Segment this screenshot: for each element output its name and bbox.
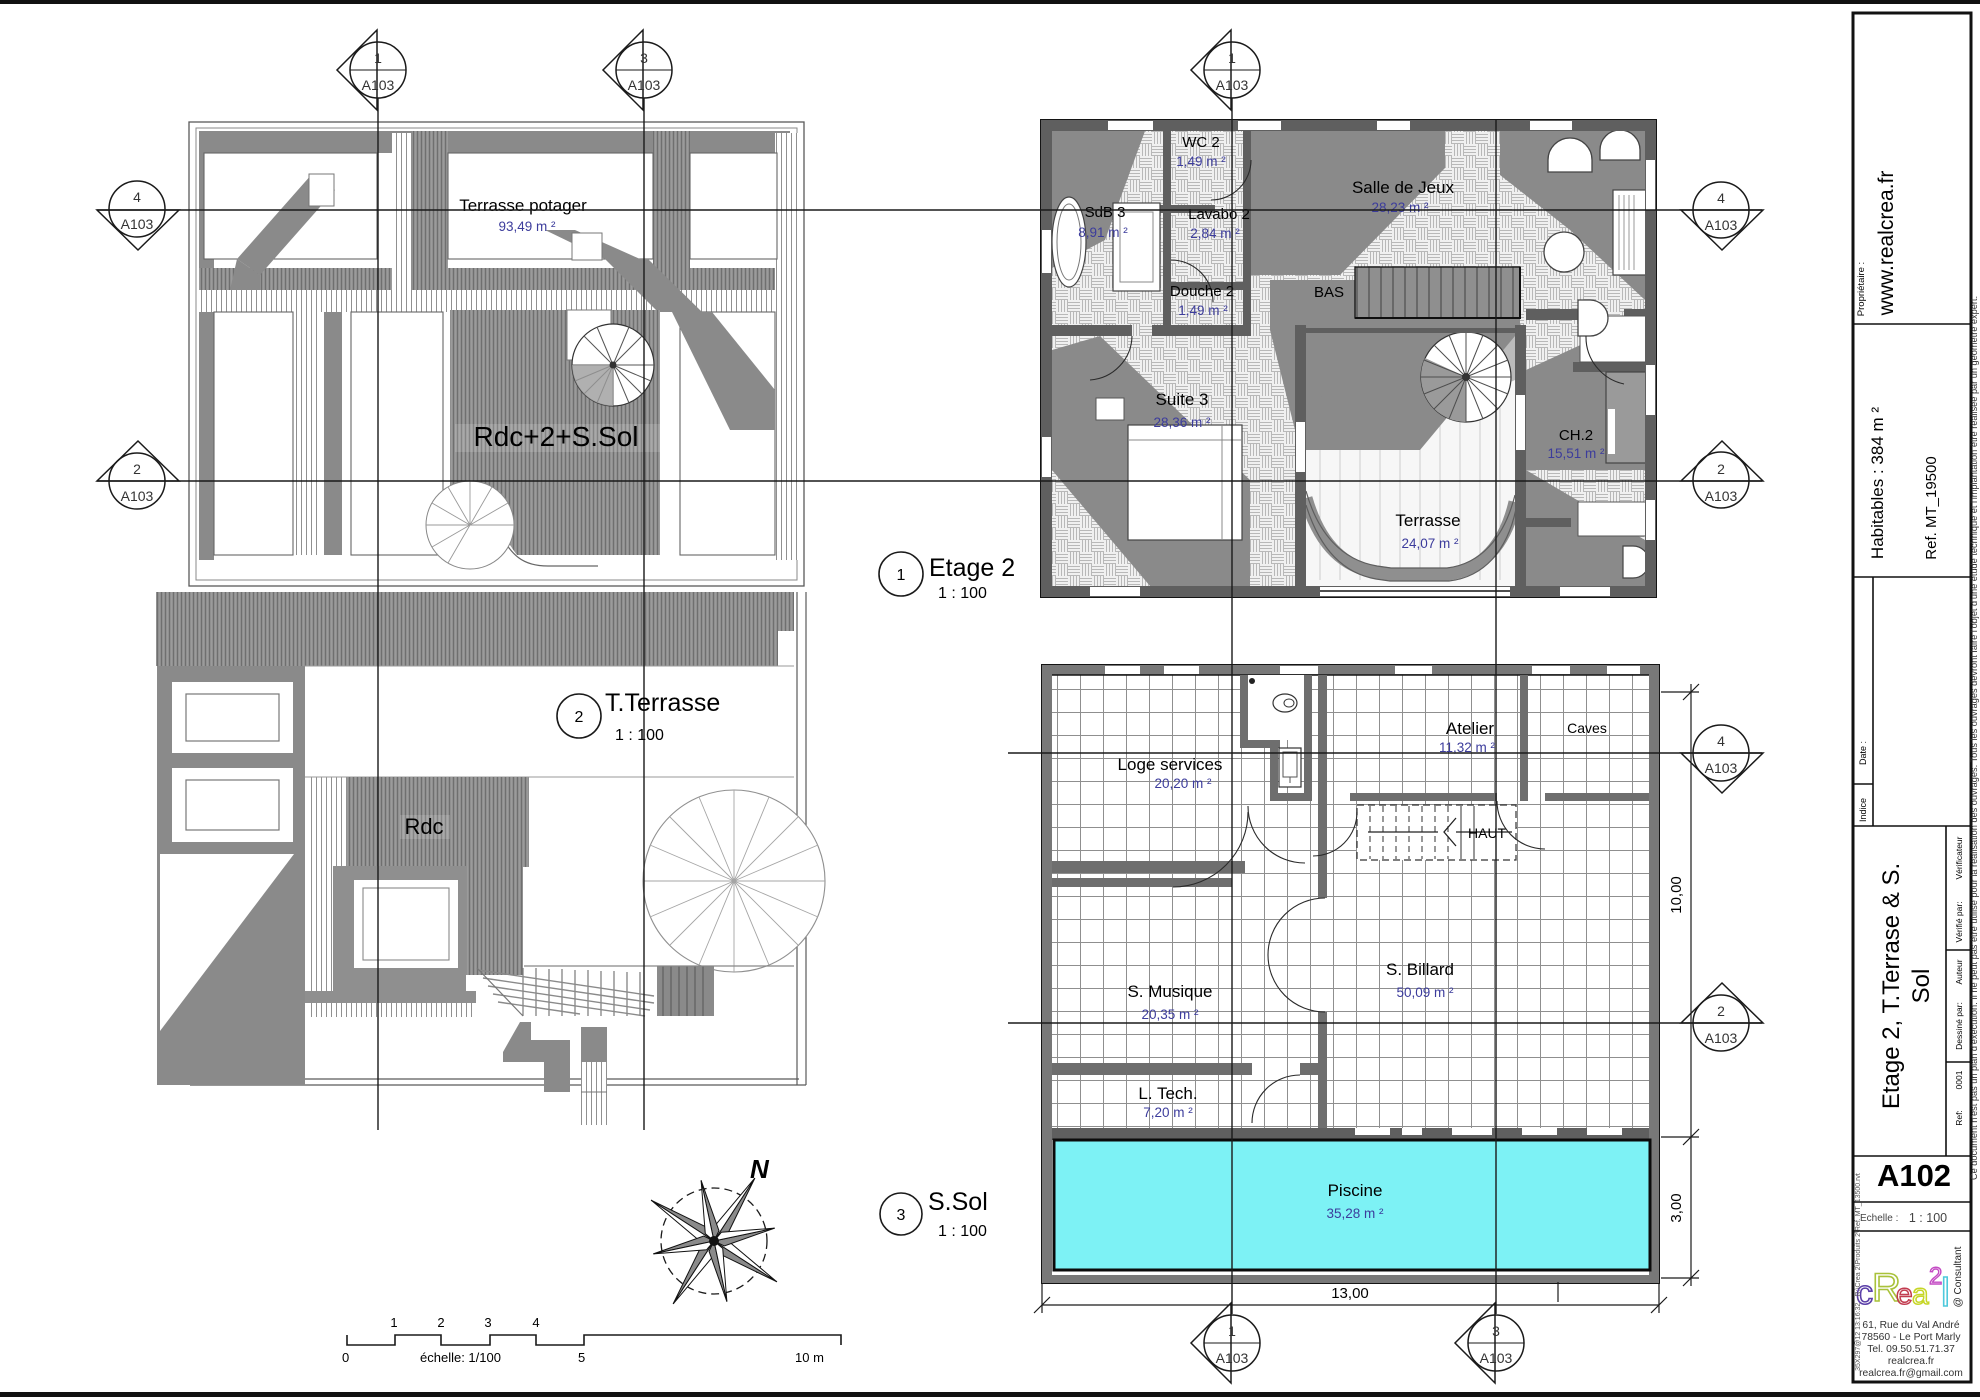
svg-text:A103: A103 bbox=[121, 488, 154, 504]
svg-text:Lavabo 2: Lavabo 2 bbox=[1188, 206, 1250, 223]
svg-text:5: 5 bbox=[578, 1350, 585, 1365]
svg-text:S.Sol: S.Sol bbox=[928, 1188, 988, 1216]
svg-text:A103: A103 bbox=[1705, 760, 1738, 776]
svg-text:S. Billard: S. Billard bbox=[1386, 960, 1454, 979]
svg-text:A103: A103 bbox=[121, 216, 154, 232]
svg-text:Habitables : 384 m ²: Habitables : 384 m ² bbox=[1868, 407, 1887, 559]
svg-text:2: 2 bbox=[1717, 461, 1725, 477]
svg-text:1: 1 bbox=[390, 1315, 397, 1330]
svg-text:S. Musique: S. Musique bbox=[1127, 982, 1212, 1001]
svg-text:Suite 3: Suite 3 bbox=[1156, 390, 1209, 409]
svg-text:CH.2: CH.2 bbox=[1559, 427, 1593, 444]
svg-text:35X297@12 13:16:32 - R:\Crea 2: 35X297@12 13:16:32 - R:\Crea 2\Produits … bbox=[1855, 1173, 1862, 1371]
svg-text:8,91 m ²: 8,91 m ² bbox=[1078, 225, 1128, 240]
svg-text:1 : 100: 1 : 100 bbox=[615, 727, 664, 744]
svg-text:Atelier: Atelier bbox=[1446, 719, 1495, 738]
svg-text:Rdc: Rdc bbox=[404, 814, 443, 839]
svg-text:A103: A103 bbox=[1480, 1350, 1513, 1366]
svg-text:3: 3 bbox=[484, 1315, 491, 1330]
svg-text:Etage 2, T.Terrase & S.: Etage 2, T.Terrase & S. bbox=[1878, 863, 1905, 1109]
svg-text:Auteur: Auteur bbox=[1954, 959, 1964, 984]
svg-text:28,23 m ²: 28,23 m ² bbox=[1371, 200, 1429, 215]
svg-text:Indice: Indice bbox=[1858, 798, 1868, 822]
svg-text:1: 1 bbox=[1228, 1323, 1236, 1339]
svg-text:1: 1 bbox=[897, 567, 906, 584]
svg-text:realcrea.fr: realcrea.fr bbox=[1888, 1356, 1935, 1367]
svg-text:Douche 2: Douche 2 bbox=[1170, 283, 1234, 300]
svg-text:4: 4 bbox=[133, 189, 141, 205]
svg-text:l: l bbox=[1941, 1271, 1950, 1315]
svg-text:4: 4 bbox=[532, 1315, 539, 1330]
svg-text:Etage 2: Etage 2 bbox=[929, 554, 1015, 582]
svg-text:13,00: 13,00 bbox=[1331, 1285, 1369, 1302]
svg-text:61, Rue du Val André: 61, Rue du Val André bbox=[1862, 1320, 1959, 1331]
svg-text:Ref. MT_19500: Ref. MT_19500 bbox=[1923, 456, 1940, 559]
svg-text:2: 2 bbox=[1717, 1003, 1725, 1019]
svg-text:A103: A103 bbox=[1705, 1030, 1738, 1046]
svg-text:1 : 100: 1 : 100 bbox=[938, 585, 987, 602]
svg-text:Piscine: Piscine bbox=[1328, 1181, 1383, 1200]
svg-text:A103: A103 bbox=[1705, 488, 1738, 504]
svg-text:Sol: Sol bbox=[1908, 969, 1935, 1004]
svg-text:10,00: 10,00 bbox=[1668, 876, 1685, 914]
svg-text:e: e bbox=[1896, 1278, 1913, 1311]
svg-text:Caves: Caves bbox=[1567, 720, 1607, 736]
svg-text:A103: A103 bbox=[1216, 77, 1249, 93]
svg-text:Tel. 09.50.51.71.37: Tel. 09.50.51.71.37 bbox=[1867, 1344, 1955, 1355]
svg-text:2: 2 bbox=[437, 1315, 444, 1330]
svg-text:Terrasse potager: Terrasse potager bbox=[459, 196, 587, 215]
svg-text:a: a bbox=[1912, 1278, 1929, 1311]
svg-text:7,20 m ²: 7,20 m ² bbox=[1143, 1105, 1193, 1120]
svg-text:Loge services: Loge services bbox=[1118, 755, 1223, 774]
svg-text:échelle: 1/100: échelle: 1/100 bbox=[420, 1350, 501, 1365]
svg-text:A102: A102 bbox=[1877, 1158, 1951, 1193]
svg-text:Vérificateur: Vérificateur bbox=[1954, 836, 1964, 879]
svg-text:1 : 100: 1 : 100 bbox=[1909, 1211, 1947, 1225]
svg-text:0: 0 bbox=[342, 1350, 349, 1365]
svg-text:35,28 m ²: 35,28 m ² bbox=[1326, 1206, 1384, 1221]
svg-text:Ce document n'est pas un plan: Ce document n'est pas un plan d'exécutio… bbox=[1969, 296, 1979, 1180]
svg-text:BAS: BAS bbox=[1314, 284, 1344, 301]
svg-text:3: 3 bbox=[640, 50, 648, 66]
svg-text:2: 2 bbox=[575, 709, 584, 726]
svg-text:2,84 m ²: 2,84 m ² bbox=[1190, 226, 1240, 241]
svg-text:1,49 m ²: 1,49 m ² bbox=[1178, 303, 1228, 318]
svg-text:93,49 m ²: 93,49 m ² bbox=[498, 219, 556, 234]
svg-text:3,00: 3,00 bbox=[1668, 1193, 1685, 1222]
svg-text:A103: A103 bbox=[1705, 217, 1738, 233]
svg-text:4: 4 bbox=[1717, 733, 1725, 749]
svg-text:Vérifié par:: Vérifié par: bbox=[1954, 901, 1964, 942]
svg-text:www.realcrea.fr: www.realcrea.fr bbox=[1875, 171, 1898, 317]
svg-text:Date :: Date : bbox=[1858, 741, 1868, 765]
svg-text:Dessiné par:: Dessiné par: bbox=[1954, 1002, 1964, 1050]
svg-text:L. Tech.: L. Tech. bbox=[1138, 1084, 1197, 1103]
svg-text:N: N bbox=[750, 1154, 770, 1184]
svg-text:A103: A103 bbox=[1216, 1350, 1249, 1366]
svg-text:20,20 m ²: 20,20 m ² bbox=[1154, 776, 1212, 791]
svg-text:Salle de Jeux: Salle de Jeux bbox=[1352, 178, 1455, 197]
svg-text:15,51 m ²: 15,51 m ² bbox=[1547, 446, 1605, 461]
svg-text:1: 1 bbox=[1228, 50, 1236, 66]
svg-text:Rdc+2+S.Sol: Rdc+2+S.Sol bbox=[474, 421, 639, 452]
svg-text:20,35 m ²: 20,35 m ² bbox=[1141, 1007, 1199, 1022]
svg-text:1: 1 bbox=[374, 50, 382, 66]
svg-text:@ Consultant: @ Consultant bbox=[1953, 1246, 1964, 1307]
svg-text:28,36 m ²: 28,36 m ² bbox=[1153, 415, 1211, 430]
svg-text:3: 3 bbox=[897, 1207, 906, 1224]
svg-text:A103: A103 bbox=[362, 77, 395, 93]
svg-text:Ref:: Ref: bbox=[1954, 1110, 1964, 1126]
svg-text:4: 4 bbox=[1717, 190, 1725, 206]
svg-text:Propriétaire :: Propriétaire : bbox=[1856, 262, 1867, 316]
svg-text:10 m: 10 m bbox=[795, 1350, 824, 1365]
svg-text:SdB 3: SdB 3 bbox=[1085, 204, 1126, 221]
svg-text:Echelle :: Echelle : bbox=[1860, 1213, 1898, 1224]
svg-text:1 : 100: 1 : 100 bbox=[938, 1223, 987, 1240]
svg-text:T.Terrasse: T.Terrasse bbox=[605, 689, 720, 717]
svg-text:78560 - Le Port Marly: 78560 - Le Port Marly bbox=[1861, 1332, 1961, 1343]
svg-text:A103: A103 bbox=[628, 77, 661, 93]
svg-text:WC 2: WC 2 bbox=[1182, 134, 1220, 151]
svg-text:realcrea.fr@gmail.com: realcrea.fr@gmail.com bbox=[1859, 1368, 1963, 1379]
svg-text:24,07 m ²: 24,07 m ² bbox=[1401, 536, 1459, 551]
svg-text:HAUT: HAUT bbox=[1468, 825, 1507, 841]
svg-text:Terrasse: Terrasse bbox=[1395, 511, 1460, 530]
svg-text:2: 2 bbox=[133, 461, 141, 477]
svg-text:0001: 0001 bbox=[1954, 1070, 1964, 1089]
svg-text:1,49 m ²: 1,49 m ² bbox=[1176, 154, 1226, 169]
svg-text:50,09 m ²: 50,09 m ² bbox=[1396, 985, 1454, 1000]
svg-text:3: 3 bbox=[1492, 1323, 1500, 1339]
